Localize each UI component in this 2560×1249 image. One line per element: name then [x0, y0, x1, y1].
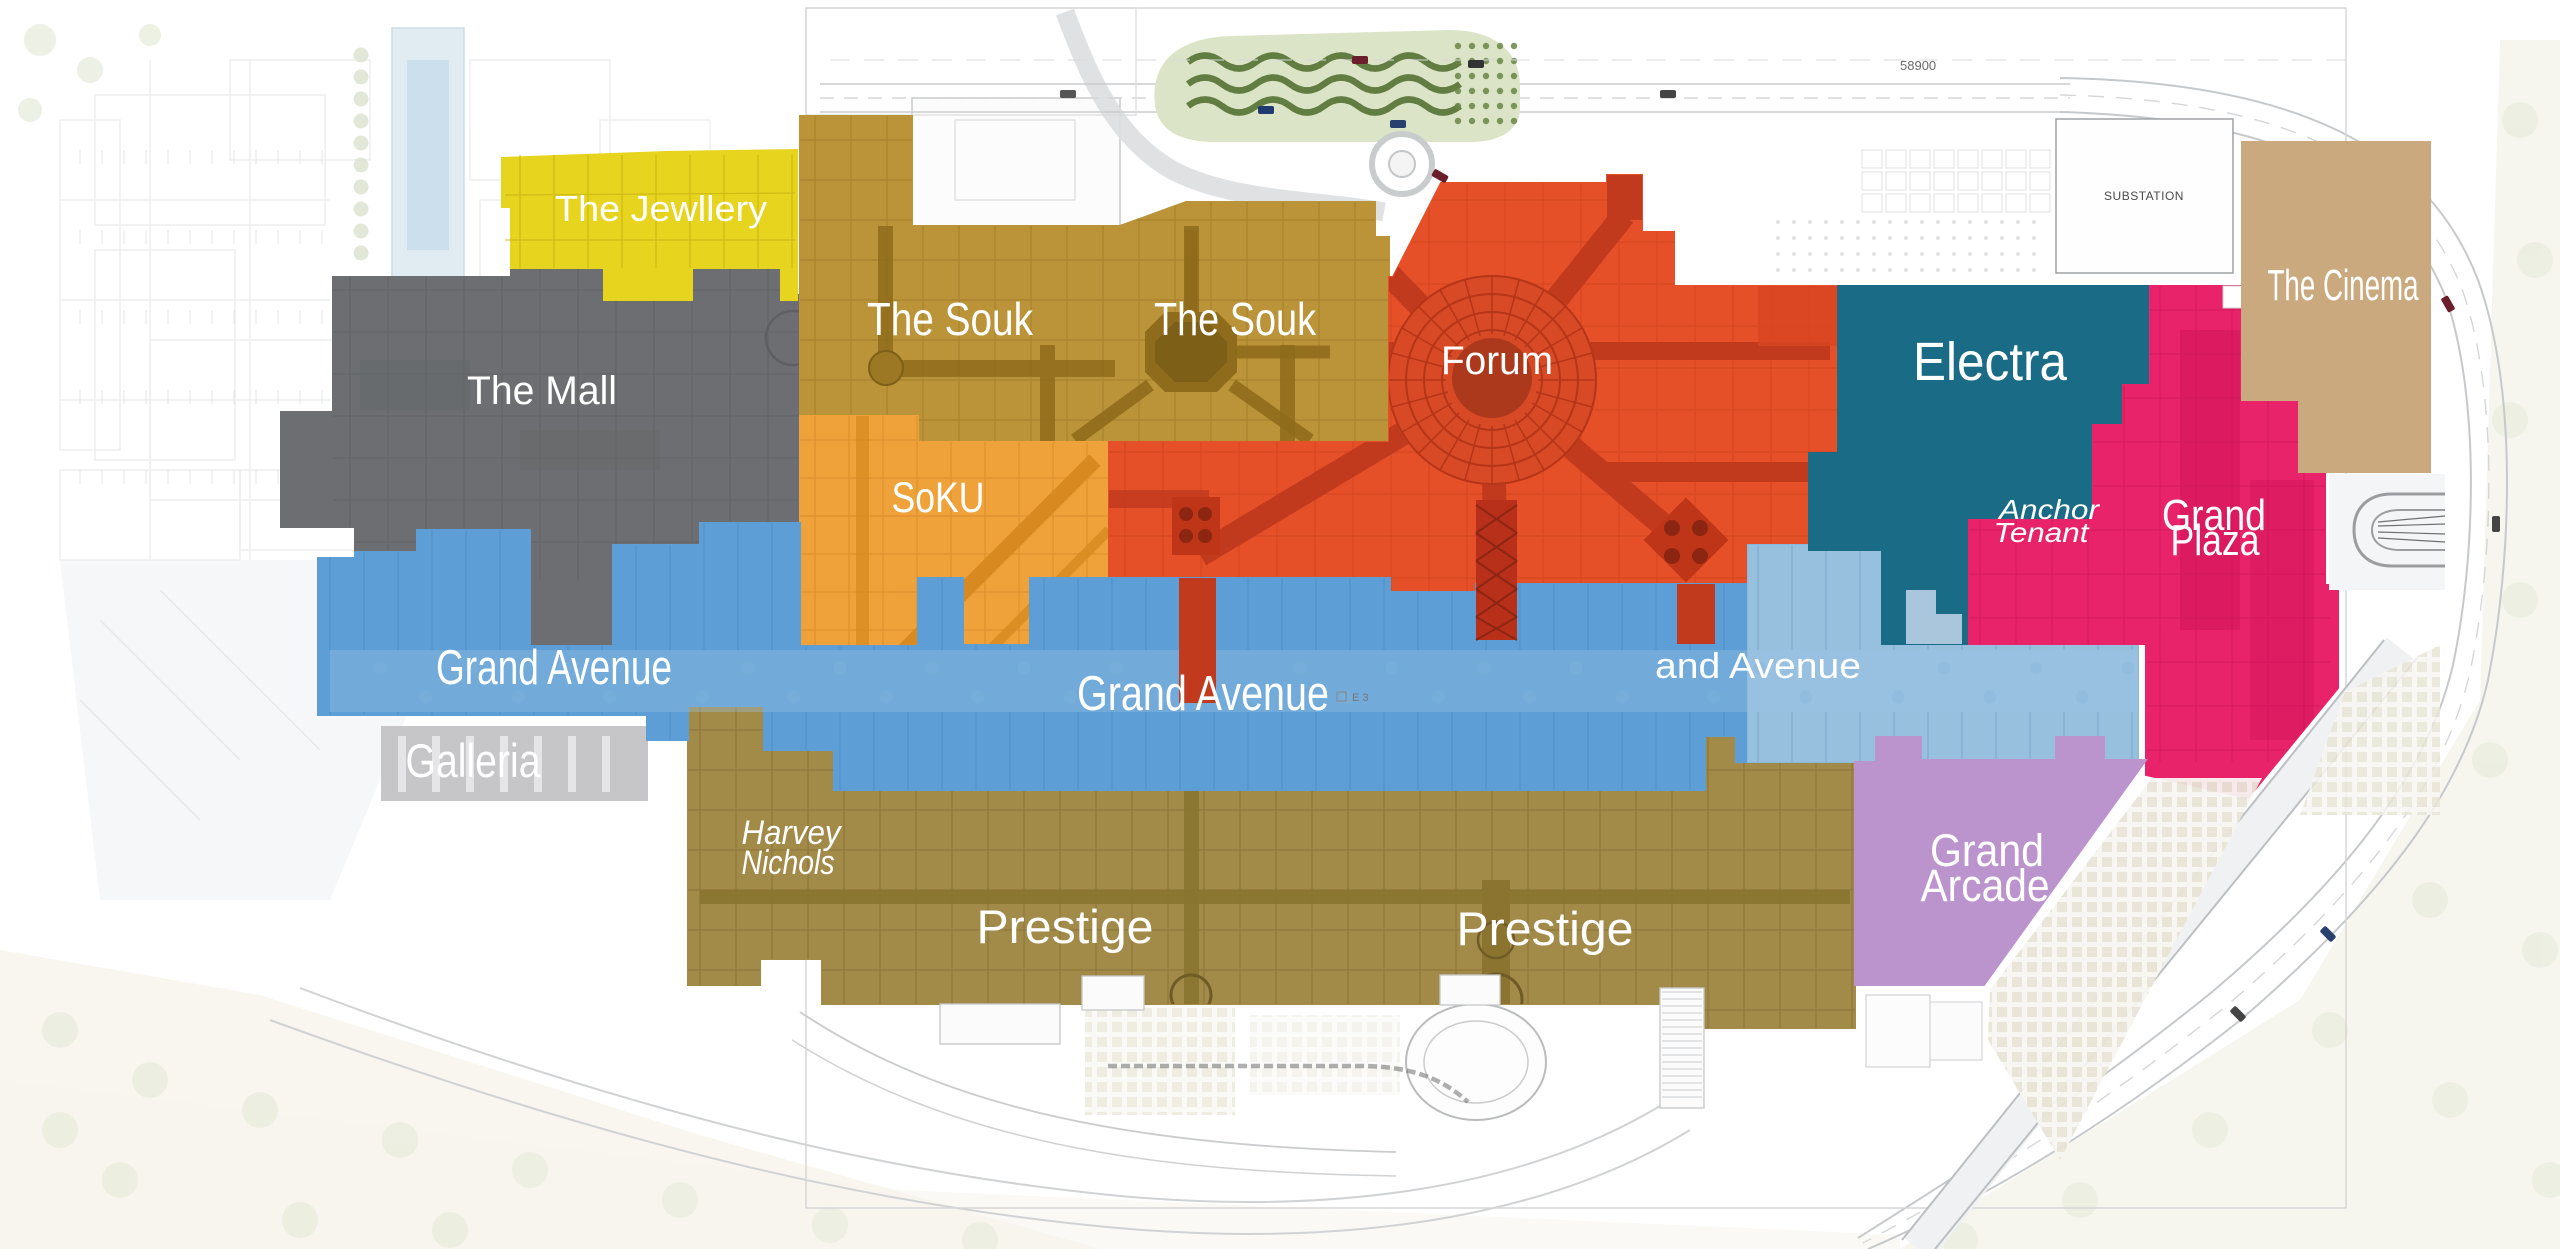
svg-text:Tenant: Tenant	[1994, 517, 2090, 548]
svg-text:Arcade: Arcade	[1921, 860, 2050, 911]
svg-text:SUBSTATION: SUBSTATION	[2104, 189, 2184, 203]
svg-text:Prestige: Prestige	[1457, 902, 1634, 955]
svg-text:Forum: Forum	[1441, 339, 1553, 383]
svg-text:Galleria: Galleria	[406, 734, 542, 787]
svg-text:Grand Avenue: Grand Avenue	[436, 641, 672, 695]
svg-text:The Souk: The Souk	[1154, 293, 1317, 345]
svg-text:Grand Avenue: Grand Avenue	[1077, 667, 1329, 721]
svg-text:and Avenue: and Avenue	[1655, 645, 1861, 686]
svg-text:The Cinema: The Cinema	[2268, 261, 2419, 310]
svg-text:SoKU: SoKU	[892, 474, 985, 522]
svg-text:Plaza: Plaza	[2171, 516, 2260, 565]
svg-text:Nichols: Nichols	[742, 844, 835, 882]
svg-text:The Souk: The Souk	[867, 293, 1034, 345]
svg-text:Electra: Electra	[1913, 332, 2068, 392]
svg-text:The Jewllery: The Jewllery	[555, 188, 767, 229]
svg-text:E 3: E 3	[1352, 692, 1369, 704]
svg-text:The Mall: The Mall	[467, 369, 617, 413]
svg-text:Prestige: Prestige	[977, 900, 1154, 953]
